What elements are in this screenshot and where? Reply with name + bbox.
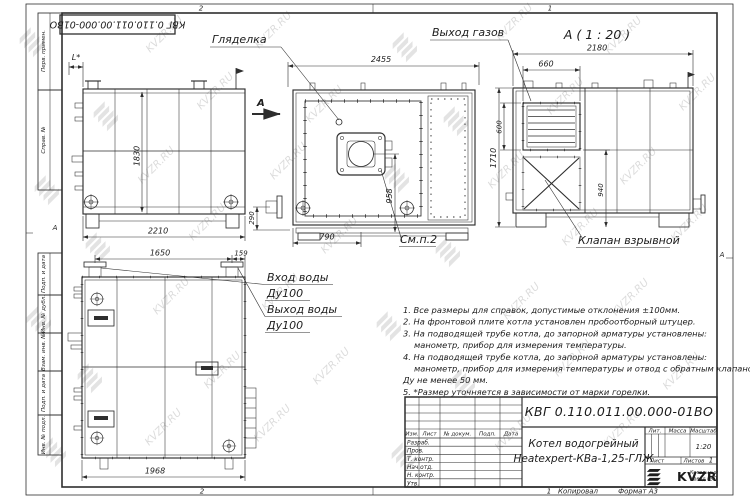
label-gas-outlet: Выход газов — [432, 26, 504, 39]
margin-label-inv-podl: Инв. № подл. — [41, 415, 47, 454]
title-block: КВГ 0.110.011.00.000-01ВО Котел водогрей… — [405, 397, 718, 487]
dim-pipe-height: 290 — [248, 211, 256, 225]
col-podp: Подп. — [479, 432, 496, 438]
dim-grille-width: 660 — [538, 60, 553, 69]
row-prov: Пров. — [407, 449, 424, 455]
dim-front-base: 790 — [319, 233, 334, 242]
dim-plan-pipes: 1650 — [150, 249, 170, 258]
col-list: Лист — [421, 432, 437, 438]
label-see-note-2: См.п.2 — [400, 233, 437, 246]
watermark-logo-icon — [390, 32, 420, 62]
note-line: манометр, прибор для измерения температу… — [414, 364, 750, 374]
plan-view: 1650 159 1968 Вход воды Ду100 Выход воды… — [68, 249, 342, 482]
watermark-logo-icon — [374, 311, 404, 341]
watermark-logo-icon — [441, 106, 471, 136]
logo-caption-2: завод РЭП — [691, 477, 717, 483]
dim-l-star: L* — [72, 53, 80, 62]
footer-format-label: Формат А3 — [618, 488, 658, 496]
logo-caption-1: Котельный — [690, 470, 718, 476]
label-explosion-valve: Клапан взрывной — [578, 234, 680, 247]
watermark-text: KVZR.RU — [195, 70, 237, 112]
drawing-sheet: KVZR.RUKVZR.RUKVZR.RUKVZR.RUKVZR.RUKVZR.… — [0, 0, 750, 500]
label-water-inlet-dn: Ду100 — [266, 287, 303, 300]
zone-number-top-right: 1 — [548, 5, 552, 13]
dim-section-height: 1710 — [489, 148, 498, 168]
dim-side-width: 2210 — [148, 227, 168, 236]
water-inlet-flange — [84, 262, 106, 277]
dim-burner-height: 958 — [385, 188, 394, 203]
label-sheets: Листов — [683, 459, 705, 465]
vent-flag — [236, 68, 244, 74]
row-nachotd: Нач.отд. — [407, 465, 433, 471]
product-name-line-2: Heatexpert-КВа-1,25-ГЛЖ — [513, 453, 654, 465]
stamp-doc-number: КВГ 0.110.011.00.000-01ВО — [49, 19, 185, 30]
margin-label-sprav-no: Справ. № — [41, 126, 47, 153]
watermark-text: KVZR.RU — [677, 71, 719, 113]
dim-plan-offset: 159 — [234, 250, 248, 258]
notes-block: 1. Все размеры для справок, допустимые о… — [402, 305, 750, 397]
watermark-text: KVZR.RU — [268, 140, 310, 182]
product-name-line-1: Котел водогрейный — [528, 438, 638, 450]
hatch-plate — [88, 411, 114, 427]
note-line: Ду не менее 50 мм. — [402, 375, 488, 385]
zone-number-top-left: 2 — [199, 5, 204, 13]
dim-grille-height: 600 — [496, 120, 504, 134]
label-massa: Масса — [669, 429, 687, 435]
footer-copy-number: 1 — [547, 488, 551, 496]
label-water-outlet-dn: Ду100 — [266, 319, 303, 332]
support-foot — [226, 214, 239, 228]
section-view-a: А ( 1 : 20 ) — [430, 26, 705, 248]
col-izm: Изм. — [405, 432, 418, 438]
row-nkontr: Н. контр. — [407, 473, 435, 479]
gas-outlet-grille — [523, 103, 580, 150]
note-line: 2. На фронтовой плите котла установлен п… — [403, 317, 696, 327]
row-tkontr: Т. контр. — [407, 457, 434, 463]
frame-marker-left: А — [52, 224, 58, 232]
watermark-text: KVZR.RU — [202, 349, 244, 391]
watermark-text: KVZR.RU — [151, 275, 193, 317]
label-masshtab: Масштаб — [690, 429, 717, 435]
frame-marker-right: А — [719, 251, 725, 259]
footer-strip: 1 Копировал Формат А3 — [547, 488, 658, 496]
handhole — [90, 431, 104, 445]
handhole — [222, 439, 236, 453]
front-view: А Гляделка См.п.2 2455 958 790 290 — [210, 33, 479, 247]
watermark-text: KVZR.RU — [618, 145, 660, 187]
section-view-title: А ( 1 : 20 ) — [563, 27, 630, 42]
handhole — [399, 200, 415, 216]
note-line: 1. Все размеры для справок, допустимые о… — [403, 305, 680, 315]
watermark-logo-icon — [75, 363, 105, 393]
section-cut-letter: А — [256, 98, 265, 109]
handhole — [83, 194, 99, 210]
label-lit: Лит. — [648, 429, 662, 435]
dim-valve-height: 940 — [597, 183, 605, 197]
row-razrab: Разраб. — [407, 441, 430, 447]
note-line: 5. *Размер уточняется в зависимости от м… — [403, 387, 650, 397]
note-line: манометр, прибор для измерения температу… — [414, 340, 627, 350]
col-data: Дата — [503, 432, 519, 438]
label-sight-glass: Гляделка — [212, 33, 267, 46]
margin-label-vzam-inv: Взам. инв. № — [41, 333, 47, 371]
dim-section-width: 2180 — [587, 44, 607, 53]
label-water-outlet: Выход воды — [267, 303, 337, 316]
note-line: 4. На подводящей трубе котла, до запорно… — [403, 352, 707, 362]
handhole — [90, 292, 104, 306]
dim-side-height: 1830 — [133, 146, 142, 166]
margin-label-podp-data-1: Подп. и дата — [41, 254, 47, 293]
margin-column: Перв. примен. Справ. № Подп. и дата Инв.… — [38, 13, 62, 455]
explosion-valve-panel — [523, 157, 580, 210]
burner-opening — [349, 142, 374, 167]
sheets-count: 1 — [709, 457, 713, 465]
scale-value: 1:20 — [696, 443, 712, 451]
company-logo: KVZR Котельный завод РЭП — [647, 469, 718, 485]
margin-label-podp-data-2: Подп. и дата — [41, 373, 47, 412]
titleblock-doc-number: КВГ 0.110.011.00.000-01ВО — [525, 404, 714, 419]
label-water-inlet: Вход воды — [267, 271, 329, 284]
watermark-logo-icon — [433, 237, 463, 267]
handhole — [295, 200, 311, 216]
zone-number-bottom-left: 2 — [200, 488, 205, 496]
dim-front-width: 2455 — [371, 55, 391, 64]
water-outlet-flange — [221, 262, 243, 277]
dim-plan-width: 1968 — [145, 467, 165, 476]
support-foot — [86, 214, 99, 228]
col-doc: № докум. — [443, 432, 472, 438]
hatch-plate — [88, 310, 114, 326]
watermark-text: KVZR.RU — [252, 402, 294, 444]
row-utv: Утв. — [407, 481, 419, 487]
watermark-logo-icon — [91, 101, 121, 131]
label-sheet: Лист — [649, 459, 665, 465]
note-line: 3. На подводящей трубе котла, до запорно… — [403, 328, 707, 338]
watermark-text: KVZR.RU — [311, 345, 353, 387]
margin-label-perv-primen: Перв. примен. — [41, 30, 47, 72]
watermark-text: KVZR.RU — [143, 406, 185, 448]
watermark-logo-icon — [24, 306, 54, 336]
margin-label-inv-dubl: Инв. № дубл. — [41, 295, 47, 333]
footer-copied-label: Копировал — [558, 488, 599, 496]
